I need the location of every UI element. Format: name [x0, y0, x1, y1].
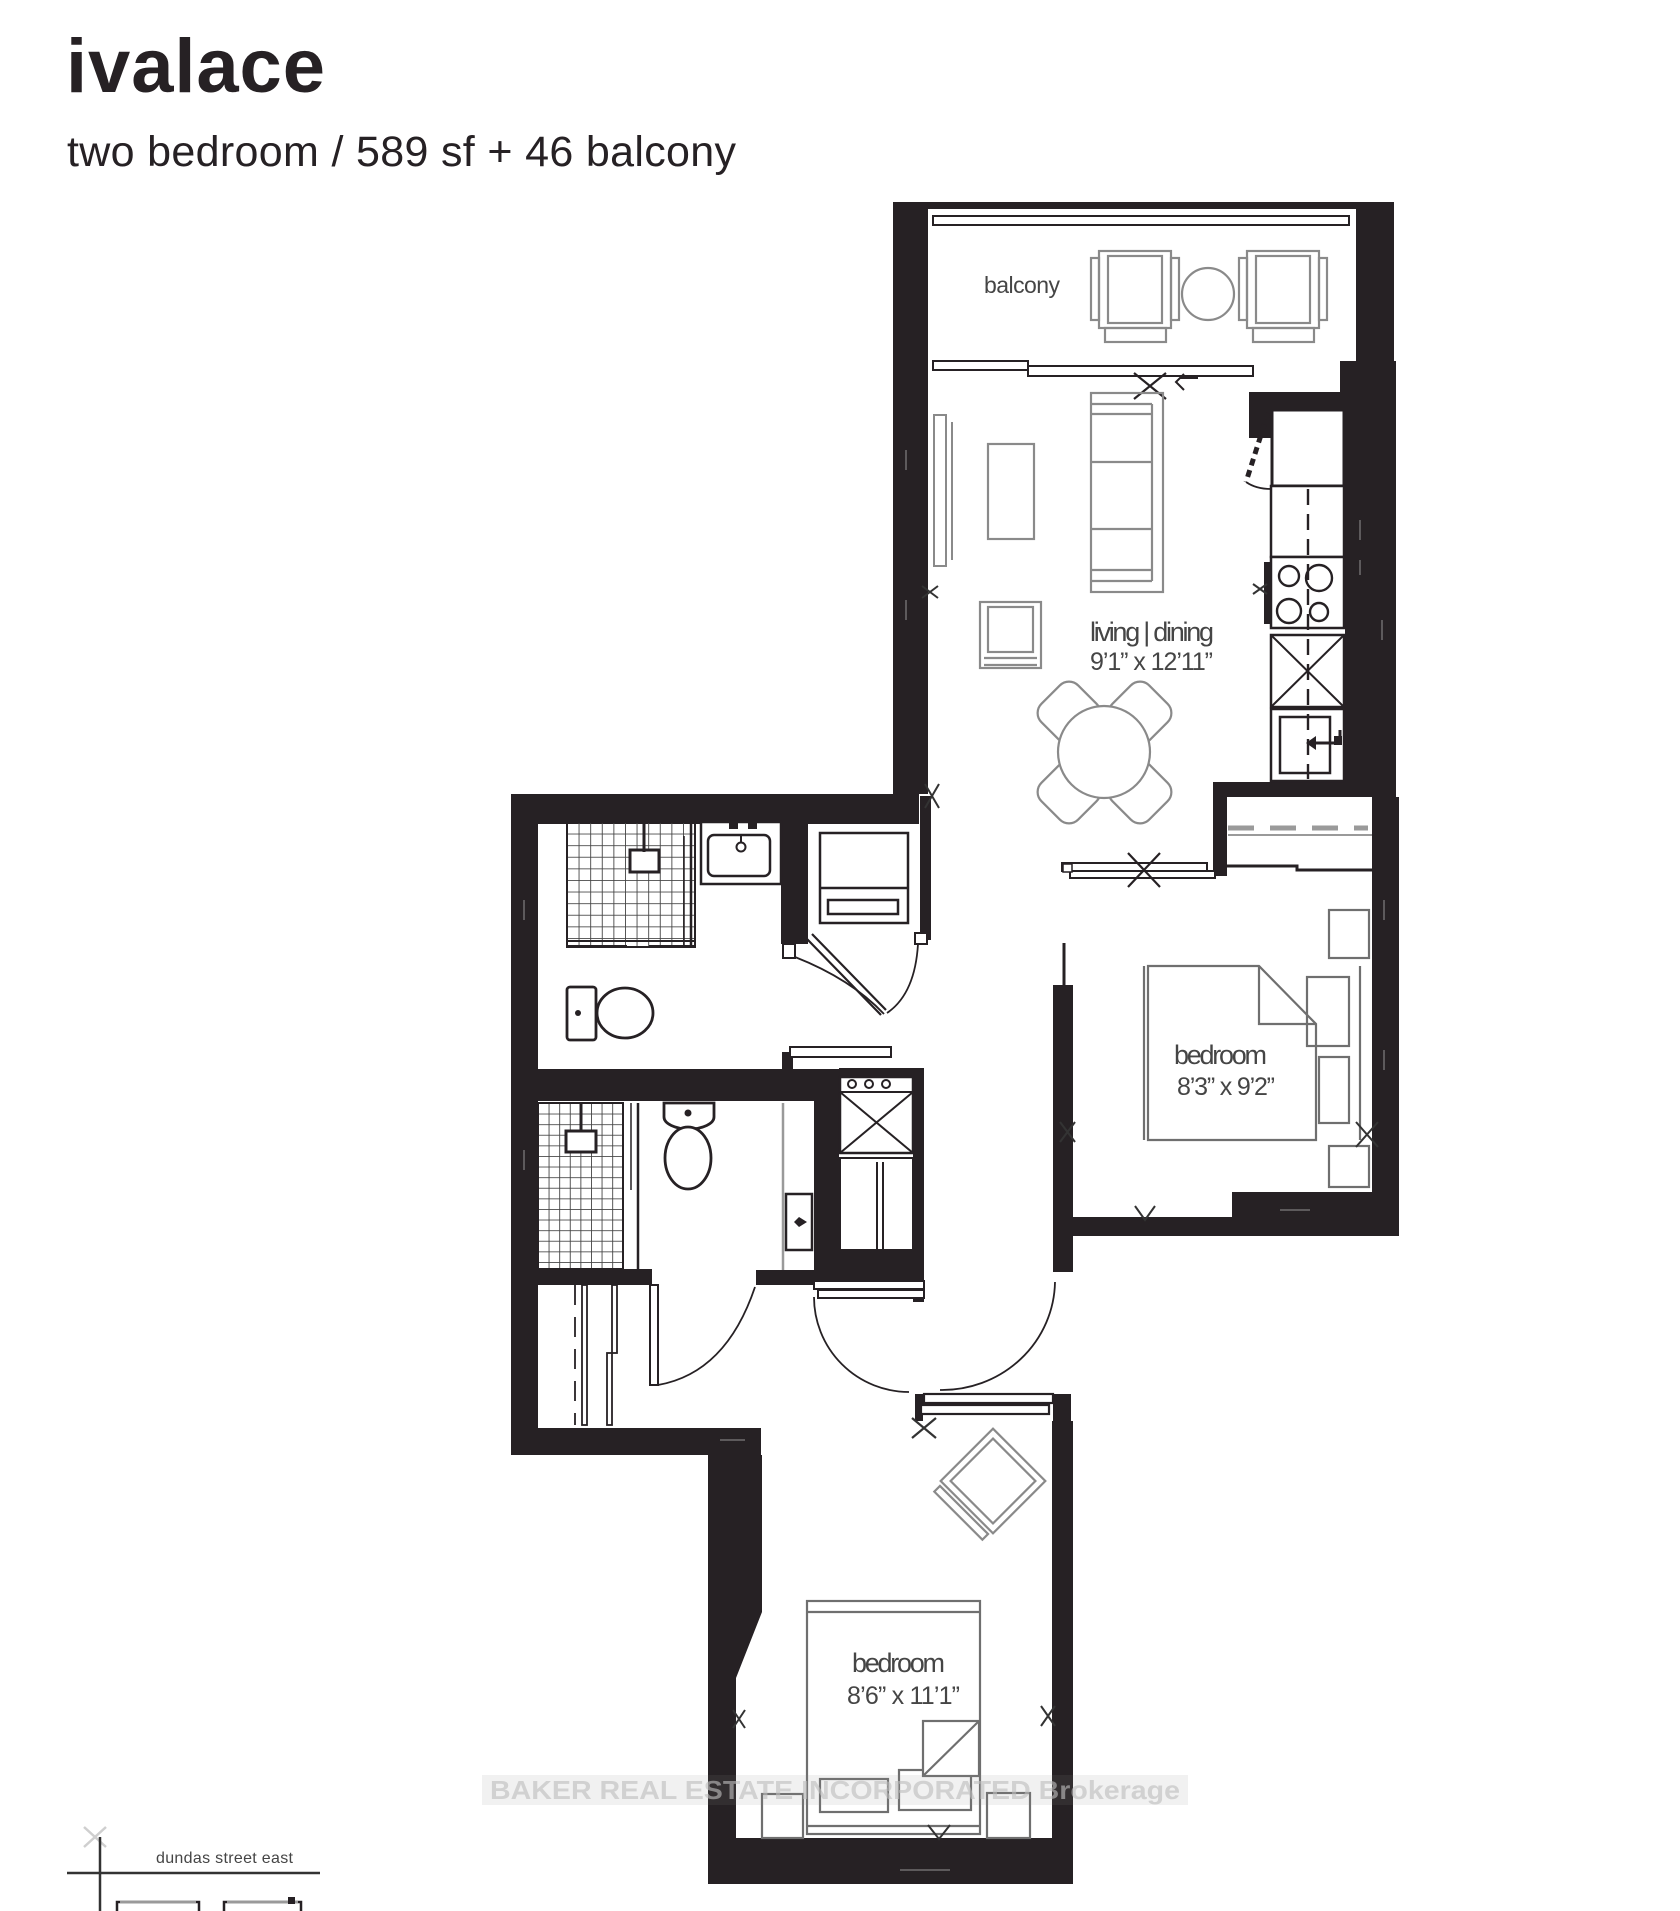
- svg-text:9’1” x 12’11”: 9’1” x 12’11”: [1090, 648, 1213, 676]
- svg-text:dundas street east: dundas street east: [156, 1850, 294, 1867]
- svg-text:BAKER REAL ESTATE INCORPORATED: BAKER REAL ESTATE INCORPORATED Brokerage: [490, 1775, 1180, 1805]
- svg-text:8’3” x 9’2”: 8’3” x 9’2”: [1177, 1073, 1275, 1101]
- svg-text:bedroom: bedroom: [1174, 1040, 1267, 1070]
- svg-text:balcony: balcony: [984, 272, 1061, 298]
- svg-text:ivalace: ivalace: [66, 24, 325, 109]
- svg-text:8’6” x 11’1”: 8’6” x 11’1”: [847, 1682, 960, 1710]
- svg-text:living | dining: living | dining: [1090, 617, 1214, 647]
- svg-text:bedroom: bedroom: [852, 1648, 945, 1678]
- svg-text:two bedroom / 589 sf + 46 balc: two bedroom / 589 sf + 46 balcony: [67, 128, 737, 176]
